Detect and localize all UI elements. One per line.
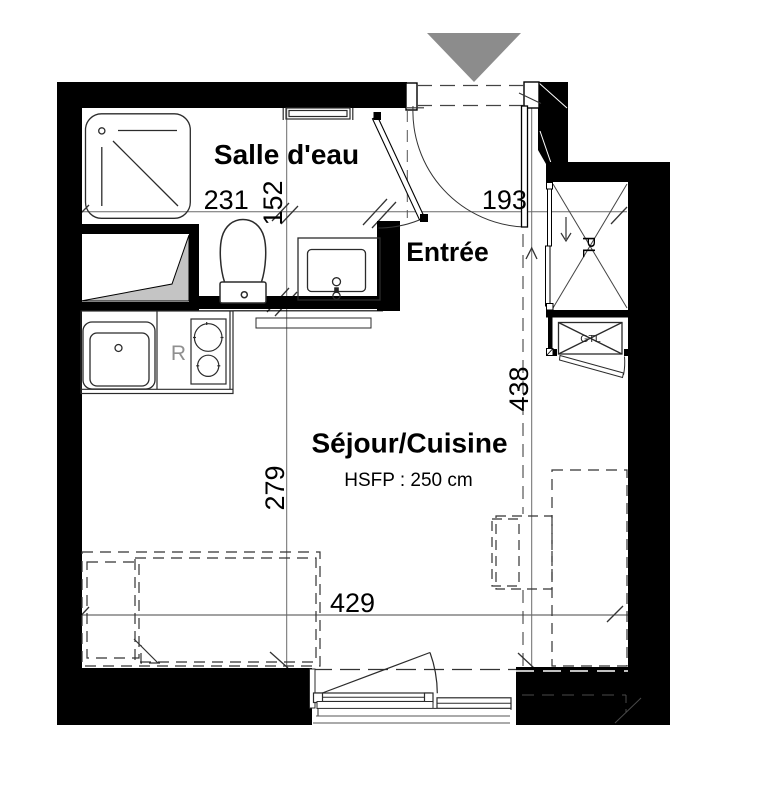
svg-text:HSFP : 250 cm: HSFP : 250 cm <box>344 470 472 491</box>
svg-text:Salle d'eau: Salle d'eau <box>214 139 359 170</box>
svg-text:152: 152 <box>258 180 288 225</box>
svg-text:279: 279 <box>260 465 290 510</box>
svg-text:PL: PL <box>579 236 599 258</box>
svg-text:429: 429 <box>330 588 375 618</box>
svg-text:GTL: GTL <box>580 333 601 345</box>
svg-text:R: R <box>171 342 186 365</box>
svg-text:438: 438 <box>504 366 534 411</box>
svg-text:193: 193 <box>482 185 527 215</box>
svg-text:Entrée: Entrée <box>406 237 488 267</box>
svg-text:Séjour/Cuisine: Séjour/Cuisine <box>311 428 507 459</box>
svg-text:231: 231 <box>204 185 249 215</box>
